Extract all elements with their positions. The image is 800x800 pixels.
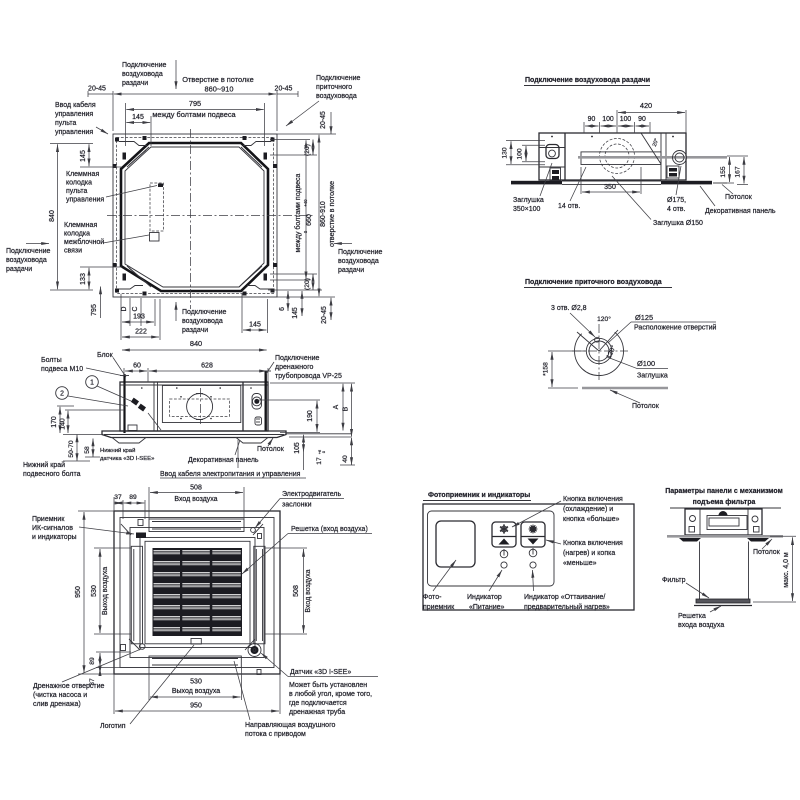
svg-text:20-45: 20-45 (321, 306, 328, 324)
svg-text:Кнопка включения: Кнопка включения (563, 540, 623, 547)
svg-text:145: 145 (249, 322, 261, 329)
svg-text:Вход воздуха: Вход воздуха (174, 496, 217, 503)
svg-text:предварительный нагрев»: предварительный нагрев» (524, 603, 610, 611)
svg-text:20-45: 20-45 (275, 86, 293, 93)
svg-text:155: 155 (720, 166, 727, 177)
svg-text:Ø175,: Ø175, (667, 197, 686, 204)
svg-text:Расположение отверстий: Расположение отверстий (634, 324, 717, 332)
svg-text:Индикатор: Индикатор (467, 594, 502, 601)
svg-text:дренажная труба: дренажная труба (289, 708, 345, 716)
svg-text:воздуховода: воздуховода (6, 257, 47, 264)
svg-text:воздуховода: воздуховода (182, 318, 223, 325)
svg-text:слив дренажа): слив дренажа) (33, 701, 81, 708)
svg-text:(нагрев) и копка: (нагрев) и копка (563, 550, 615, 557)
svg-text:170: 170 (51, 416, 58, 428)
svg-text:Датчик «3D I-SEE»: Датчик «3D I-SEE» (290, 669, 351, 676)
svg-text:(охлаждение) и: (охлаждение) и (563, 506, 613, 513)
svg-text:Дренажное отверстие: Дренажное отверстие (33, 683, 105, 690)
svg-text:795: 795 (91, 304, 98, 316)
svg-text:Декоративная панель: Декоративная панель (188, 457, 259, 464)
svg-text:145: 145 (292, 307, 299, 319)
svg-text:Логотип: Логотип (100, 723, 126, 730)
svg-text:120°: 120° (597, 315, 611, 323)
svg-text:управления: управления (55, 111, 93, 118)
svg-text:350: 350 (604, 184, 616, 191)
svg-text:Клеммная: Клеммная (64, 222, 97, 229)
svg-text:Заглушка: Заглушка (513, 197, 544, 204)
svg-text:пульта: пульта (66, 188, 87, 195)
svg-text:приточного: приточного (316, 84, 352, 91)
svg-text:530: 530 (91, 585, 98, 597)
svg-text:Подключение: Подключение (338, 249, 382, 256)
svg-text:колодка: колодка (66, 180, 92, 187)
svg-text:отверстие в потолке: отверстие в потолке (329, 181, 336, 247)
svg-text:100: 100 (602, 116, 614, 123)
svg-text:4 отв.: 4 отв. (667, 206, 686, 213)
svg-text:между болтами подвеса: между болтами подвеса (294, 173, 302, 252)
svg-text:управления: управления (66, 197, 104, 204)
svg-text:межблочной: межблочной (64, 238, 104, 246)
svg-text:раздачи: раздачи (182, 327, 208, 334)
svg-text:D: D (121, 306, 128, 311)
svg-text:Подключение приточного воздухо: Подключение приточного воздуховода (525, 279, 662, 286)
svg-text:660: 660 (306, 214, 313, 226)
svg-text:ИК-сигналов: ИК-сигналов (32, 525, 73, 532)
svg-text:840: 840 (190, 339, 202, 348)
svg-text:420: 420 (640, 101, 652, 110)
svg-text:B: B (343, 406, 350, 411)
svg-text:193: 193 (133, 314, 145, 321)
svg-text:связи: связи (64, 248, 82, 255)
svg-text:Ввод кабеля электропитания и у: Ввод кабеля электропитания и управления (160, 470, 301, 478)
svg-text:макс. 4,0 м: макс. 4,0 м (783, 552, 790, 587)
svg-text:Фото-: Фото- (423, 594, 442, 601)
svg-text:Ввод кабеля: Ввод кабеля (55, 101, 96, 109)
svg-text:Подключение: Подключение (275, 355, 319, 362)
svg-text:между болтами подвеса: между болтами подвеса (152, 110, 236, 119)
svg-text:795: 795 (189, 99, 201, 108)
svg-text:«меньше»: «меньше» (563, 560, 597, 567)
svg-text:Блок: Блок (97, 352, 114, 359)
svg-text:колодка: колодка (64, 231, 90, 238)
svg-text:Подключение: Подключение (6, 248, 50, 255)
svg-text:20-45: 20-45 (88, 86, 106, 93)
svg-text:Решетка: Решетка (678, 613, 706, 620)
svg-text:входа воздуха: входа воздуха (678, 622, 724, 629)
svg-text:Кнопка включения: Кнопка включения (563, 496, 623, 503)
svg-text:подъема фильтра: подъема фильтра (693, 499, 756, 506)
svg-text:и индикаторы: и индикаторы (32, 534, 77, 541)
svg-text:Ø100: Ø100 (637, 359, 655, 368)
svg-text:(20): (20) (304, 144, 311, 156)
svg-text:190: 190 (307, 410, 314, 422)
svg-text:воздуховода: воздуховода (316, 93, 357, 100)
svg-text:167: 167 (735, 166, 742, 177)
svg-text:подвесного болта: подвесного болта (23, 470, 81, 478)
svg-text:Направляющая воздушного: Направляющая воздушного (245, 722, 335, 729)
svg-text:17: 17 (316, 457, 323, 465)
svg-text:C: C (132, 306, 139, 311)
svg-text:Вход воздуха: Вход воздуха (305, 569, 312, 612)
svg-text:Клеммная: Клеммная (66, 171, 99, 178)
svg-text:где подключается: где подключается (289, 700, 347, 707)
svg-text:222: 222 (135, 329, 147, 336)
svg-text:A: A (333, 404, 340, 409)
svg-text:Нижний край: Нижний край (23, 461, 65, 469)
svg-text:в любой угол, кроме того,: в любой угол, кроме того, (289, 690, 372, 698)
svg-text:Подключение: Подключение (316, 75, 360, 82)
svg-text:20-45: 20-45 (320, 111, 327, 129)
svg-text:приемник: приемник (423, 604, 455, 611)
svg-text:14 отв.: 14 отв. (558, 203, 580, 210)
svg-text:Нижний край: Нижний край (100, 447, 135, 454)
svg-text:508: 508 (190, 485, 202, 492)
svg-text:Заглушка Ø150: Заглушка Ø150 (653, 220, 703, 227)
svg-text:Электродвигатель: Электродвигатель (282, 491, 341, 498)
svg-text:дренажного: дренажного (275, 364, 313, 371)
svg-text:950: 950 (190, 703, 202, 710)
svg-text:Потолок: Потолок (753, 549, 781, 556)
svg-text:Выход воздуха: Выход воздуха (172, 688, 220, 695)
svg-text:(20): (20) (304, 278, 311, 290)
svg-text:*158: *158 (543, 362, 550, 376)
svg-text:60: 60 (133, 363, 141, 370)
svg-text:145: 145 (80, 150, 87, 162)
svg-text:1: 1 (90, 380, 94, 387)
svg-text:89: 89 (89, 657, 96, 665)
svg-text:130: 130 (502, 147, 509, 158)
svg-text:Отверстие в потолке: Отверстие в потолке (182, 75, 254, 84)
svg-text:управления: управления (55, 129, 93, 136)
svg-text:37: 37 (114, 494, 122, 501)
svg-text:заслонки: заслонки (282, 502, 312, 509)
svg-text:раздачи: раздачи (122, 80, 148, 87)
svg-text:Декоративная панель: Декоративная панель (705, 208, 776, 215)
svg-text:860~910: 860~910 (205, 85, 234, 94)
svg-text:950: 950 (75, 586, 82, 598)
svg-text:Подключение: Подключение (122, 62, 166, 69)
svg-text:105: 105 (294, 442, 301, 454)
svg-text:840: 840 (49, 210, 56, 222)
svg-text:+40: +40 (303, 199, 308, 207)
svg-text:100: 100 (517, 148, 524, 159)
svg-text:«Питание»: «Питание» (469, 604, 505, 611)
svg-text:860-910: 860-910 (320, 201, 327, 227)
svg-text:530: 530 (190, 679, 202, 686)
svg-text:100: 100 (620, 116, 632, 123)
svg-text:кнопка «больше»: кнопка «больше» (563, 515, 620, 523)
svg-text:6: 6 (279, 307, 286, 311)
svg-text:90: 90 (638, 116, 646, 123)
svg-text:Выход воздуха: Выход воздуха (102, 567, 109, 615)
svg-text:пульта: пульта (55, 120, 76, 127)
svg-text:воздуховода: воздуховода (122, 71, 163, 78)
svg-text:Решетка (вход воздуха): Решетка (вход воздуха) (291, 526, 368, 533)
svg-text:Может быть установлен: Может быть установлен (289, 681, 367, 689)
svg-text:раздачи: раздачи (338, 267, 364, 274)
svg-text:508: 508 (293, 585, 300, 597)
svg-text:Заглушка: Заглушка (637, 373, 668, 380)
svg-text:145: 145 (132, 114, 144, 121)
svg-text:Приемник: Приемник (32, 516, 65, 523)
svg-text:3 отв. Ø2,8: 3 отв. Ø2,8 (551, 305, 587, 312)
svg-text:Индикатор «Оттаивание/: Индикатор «Оттаивание/ (524, 594, 605, 601)
svg-text:58: 58 (84, 446, 91, 454)
svg-text:Ø125: Ø125 (635, 313, 653, 322)
svg-text:Болты: Болты (41, 357, 62, 364)
svg-text:датчика «3D I-SEE»: датчика «3D I-SEE» (100, 456, 155, 462)
svg-text:Потолок: Потолок (725, 194, 753, 201)
svg-text:раздачи: раздачи (6, 266, 32, 273)
svg-text:89: 89 (129, 494, 137, 501)
svg-text:2: 2 (60, 391, 64, 398)
svg-text:350×100: 350×100 (513, 206, 541, 213)
svg-text:628: 628 (201, 363, 213, 370)
svg-text:потока с приводом: потока с приводом (245, 731, 306, 738)
svg-text:Подключение воздуховода раздач: Подключение воздуховода раздачи (525, 77, 650, 84)
svg-text:140: 140 (60, 418, 67, 430)
svg-text:воздуховода: воздуховода (338, 258, 379, 265)
svg-text:Фотоприемник и индикаторы: Фотоприемник и индикаторы (428, 492, 530, 499)
svg-text:Параметры панели с механизмом: Параметры панели с механизмом (665, 488, 783, 495)
svg-text:подвеса M10: подвеса M10 (41, 366, 83, 373)
svg-text:90: 90 (588, 116, 596, 123)
svg-text:Подключение: Подключение (182, 309, 226, 316)
svg-text:133: 133 (80, 273, 87, 285)
svg-text:Фильтр: Фильтр (662, 577, 686, 584)
svg-text:40: 40 (342, 455, 349, 463)
svg-text:Потолок: Потолок (257, 446, 285, 453)
svg-text:(чистка насоса и: (чистка насоса и (33, 692, 87, 699)
svg-text:Потолок: Потолок (632, 403, 660, 410)
svg-text:50-70: 50-70 (68, 440, 75, 457)
svg-text:трубопровода VP-25: трубопровода VP-25 (275, 372, 342, 380)
